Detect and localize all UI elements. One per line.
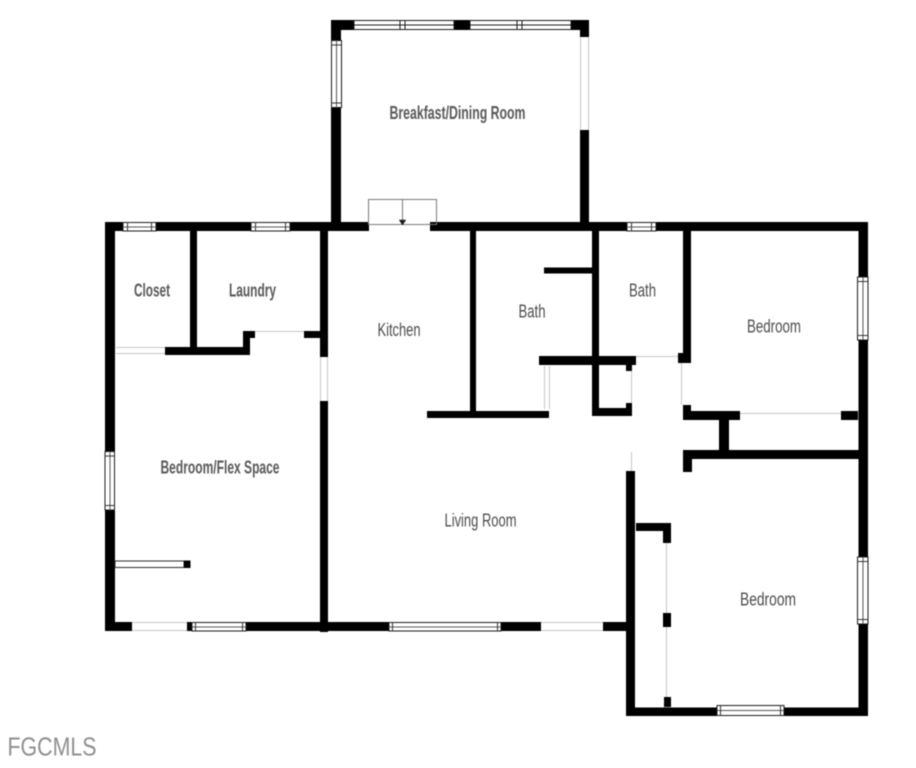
svg-text:Bedroom/Flex Space: Bedroom/Flex Space — [161, 458, 280, 478]
svg-text:Living Room: Living Room — [445, 511, 517, 531]
svg-text:Bedroom: Bedroom — [747, 317, 801, 337]
svg-text:Closet: Closet — [134, 281, 170, 301]
svg-text:Bath: Bath — [629, 281, 656, 301]
svg-text:Laundry: Laundry — [229, 281, 276, 301]
svg-text:Bath: Bath — [519, 302, 546, 322]
svg-text:Kitchen: Kitchen — [378, 320, 421, 340]
svg-text:FGCMLS: FGCMLS — [8, 734, 97, 762]
svg-text:Bedroom: Bedroom — [740, 590, 796, 610]
svg-text:Breakfast/Dining Room: Breakfast/Dining Room — [390, 103, 526, 123]
